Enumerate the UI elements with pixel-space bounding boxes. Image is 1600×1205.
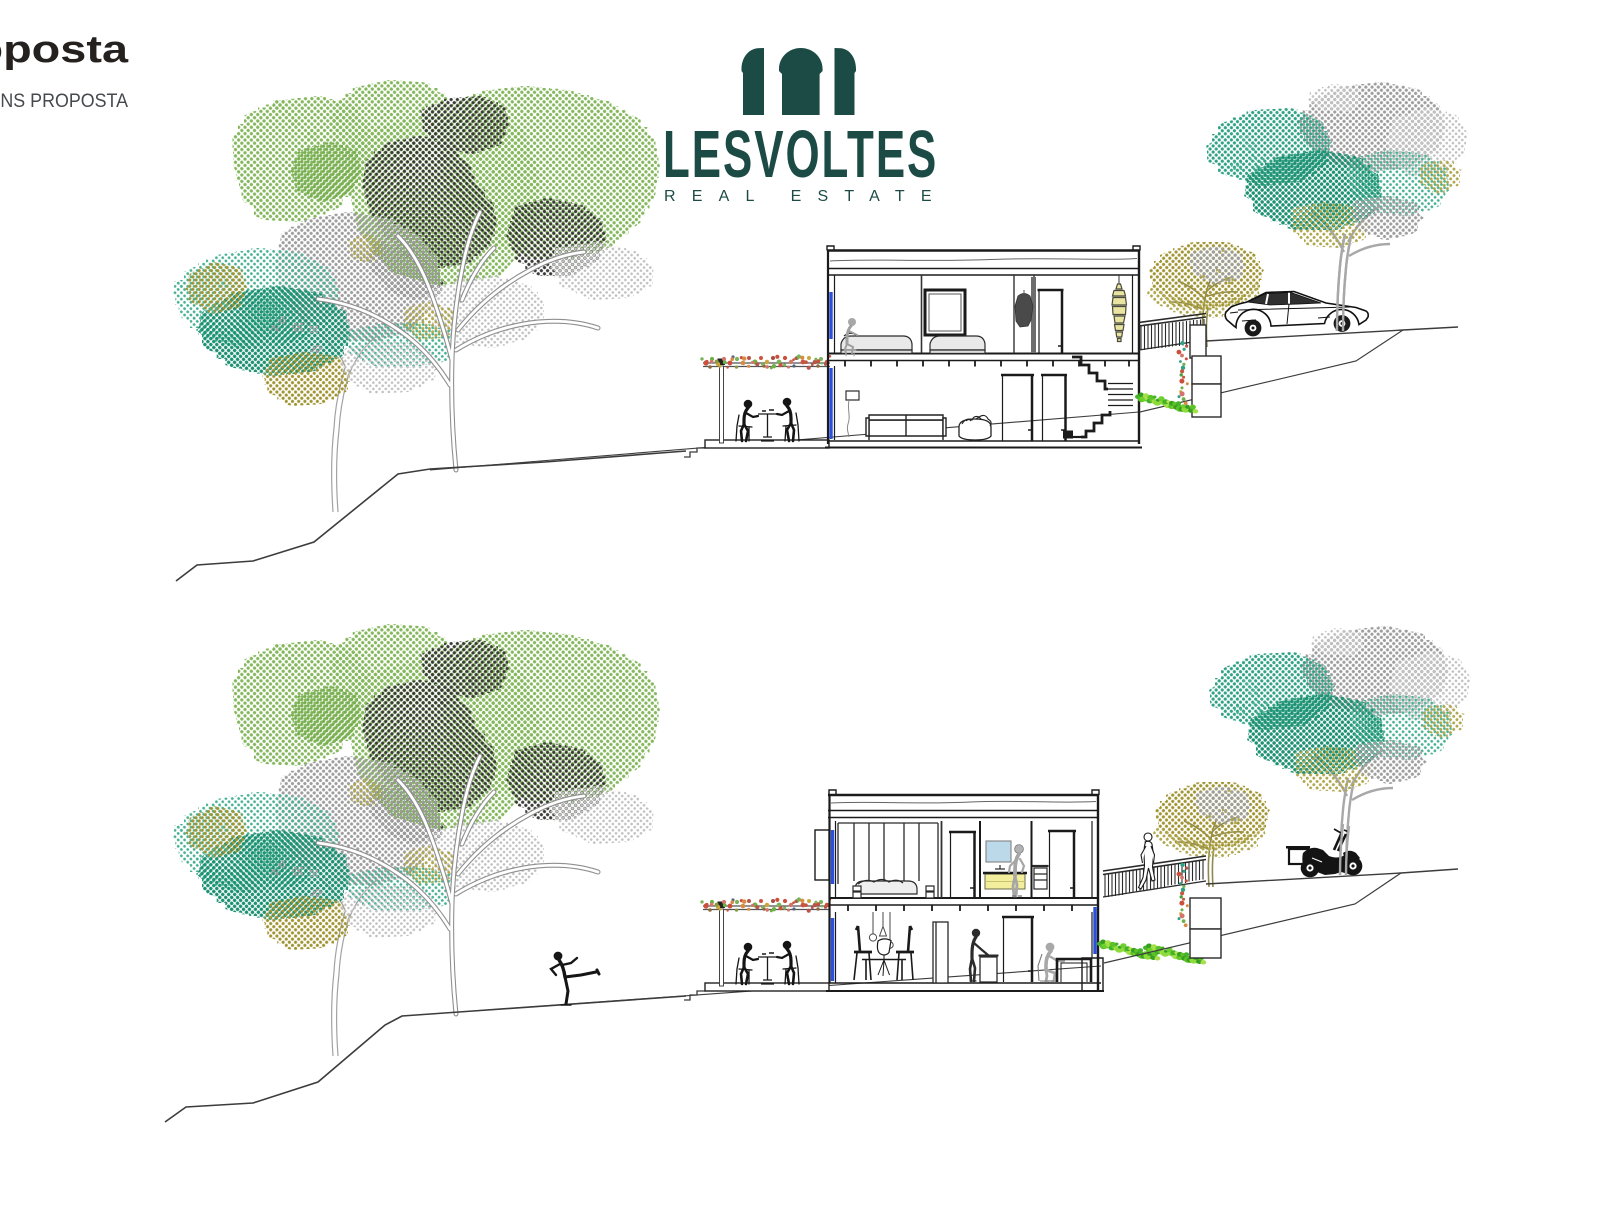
svg-text:REAL ESTATE: REAL ESTATE	[664, 188, 948, 205]
svg-text:SECCIONS PROPOSTA: SECCIONS PROPOSTA	[0, 91, 128, 112]
svg-text:Proposta: Proposta	[0, 29, 129, 71]
svg-text:LESVOLTES: LESVOLTES	[663, 118, 938, 193]
